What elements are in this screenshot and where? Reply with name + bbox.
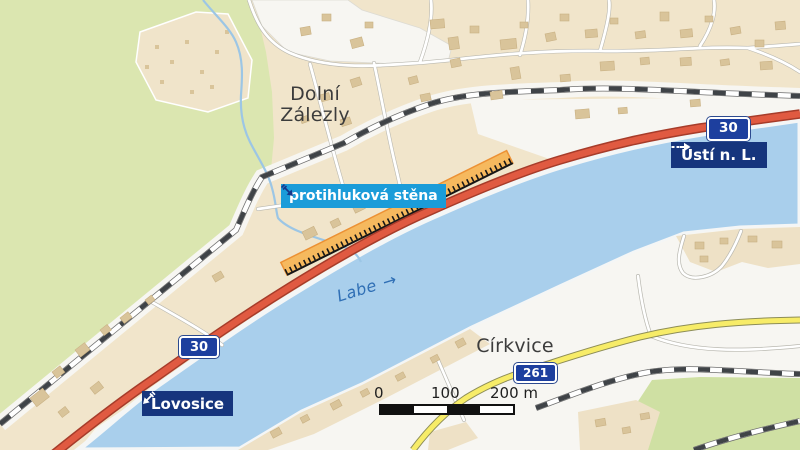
map-canvas: Dolní Zálezly Církvice Labe→ protihlukov… bbox=[0, 0, 800, 450]
map-graphics bbox=[0, 0, 800, 450]
